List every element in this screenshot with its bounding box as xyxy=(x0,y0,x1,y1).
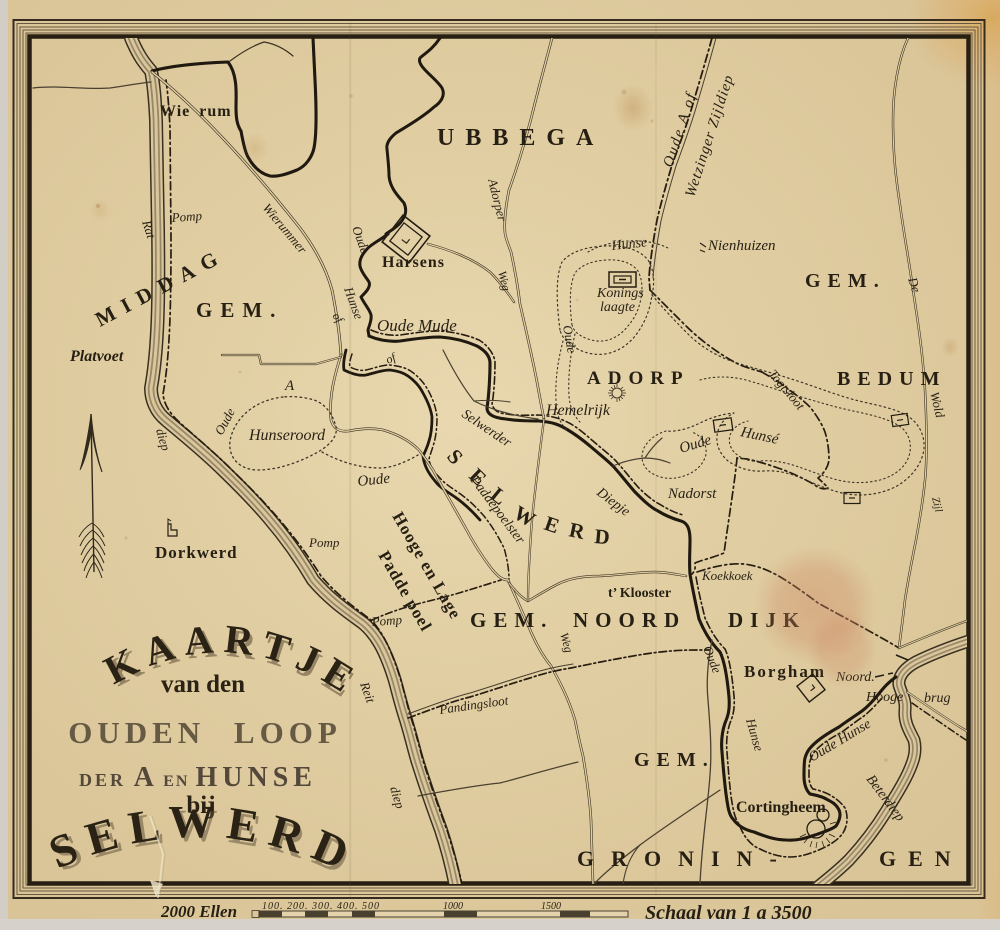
svg-text:Schaal van 1 a 3500: Schaal van 1 a 3500 xyxy=(645,902,812,924)
svg-text:NOORD: NOORD xyxy=(573,608,686,632)
svg-text:D: D xyxy=(594,524,611,549)
svg-text:2000 Ellen: 2000 Ellen xyxy=(160,902,237,921)
svg-text:Cortingheem: Cortingheem xyxy=(736,799,826,816)
svg-text:1500: 1500 xyxy=(541,901,561,912)
svg-text:GEM.: GEM. xyxy=(470,608,553,632)
svg-text:Dorkwerd: Dorkwerd xyxy=(155,543,238,562)
svg-text:Platvoet: Platvoet xyxy=(69,348,124,365)
svg-text:Pomp: Pomp xyxy=(370,612,403,629)
svg-text:t’ Klooster: t’ Klooster xyxy=(608,586,671,601)
svg-text:Hooge: Hooge xyxy=(865,690,903,705)
svg-text:Oude Mude: Oude Mude xyxy=(377,316,457,335)
svg-text:Koekkoek: Koekkoek xyxy=(701,568,753,583)
svg-text:van den: van den xyxy=(161,671,245,698)
svg-text:Hunseroord: Hunseroord xyxy=(248,427,326,444)
svg-text:OUDEN LOOP: OUDEN LOOP xyxy=(68,715,342,750)
svg-text:Wie rum: Wie rum xyxy=(160,103,232,120)
svg-text:100. 200. 300. 400. 500: 100. 200. 300. 400. 500 xyxy=(262,901,380,912)
svg-text:Harsens: Harsens xyxy=(382,254,445,271)
svg-text:GRONIN-: GRONIN- xyxy=(577,846,794,871)
svg-text:Oude: Oude xyxy=(357,471,391,490)
svg-text:GEM.: GEM. xyxy=(805,270,886,292)
svg-text:Pomp: Pomp xyxy=(308,535,340,550)
svg-text:Nadorst: Nadorst xyxy=(667,486,717,502)
svg-text:Nienhuizen: Nienhuizen xyxy=(707,238,776,254)
svg-text:Konings: Konings xyxy=(596,286,644,301)
svg-text:GEM.: GEM. xyxy=(196,298,283,322)
svg-text:GEM.: GEM. xyxy=(634,749,715,771)
svg-text:GEN: GEN xyxy=(879,846,963,871)
svg-text:UBBEGA: UBBEGA xyxy=(437,125,604,151)
svg-text:ADORP: ADORP xyxy=(587,368,690,389)
svg-text:laagte: laagte xyxy=(600,300,635,315)
svg-text:BEDUM: BEDUM xyxy=(837,368,946,390)
svg-text:Hemelrijk: Hemelrijk xyxy=(545,402,611,419)
svg-text:brug: brug xyxy=(924,691,950,706)
svg-text:A: A xyxy=(284,378,295,394)
svg-text:1000: 1000 xyxy=(443,901,463,912)
svg-text:Pomp: Pomp xyxy=(170,208,203,225)
